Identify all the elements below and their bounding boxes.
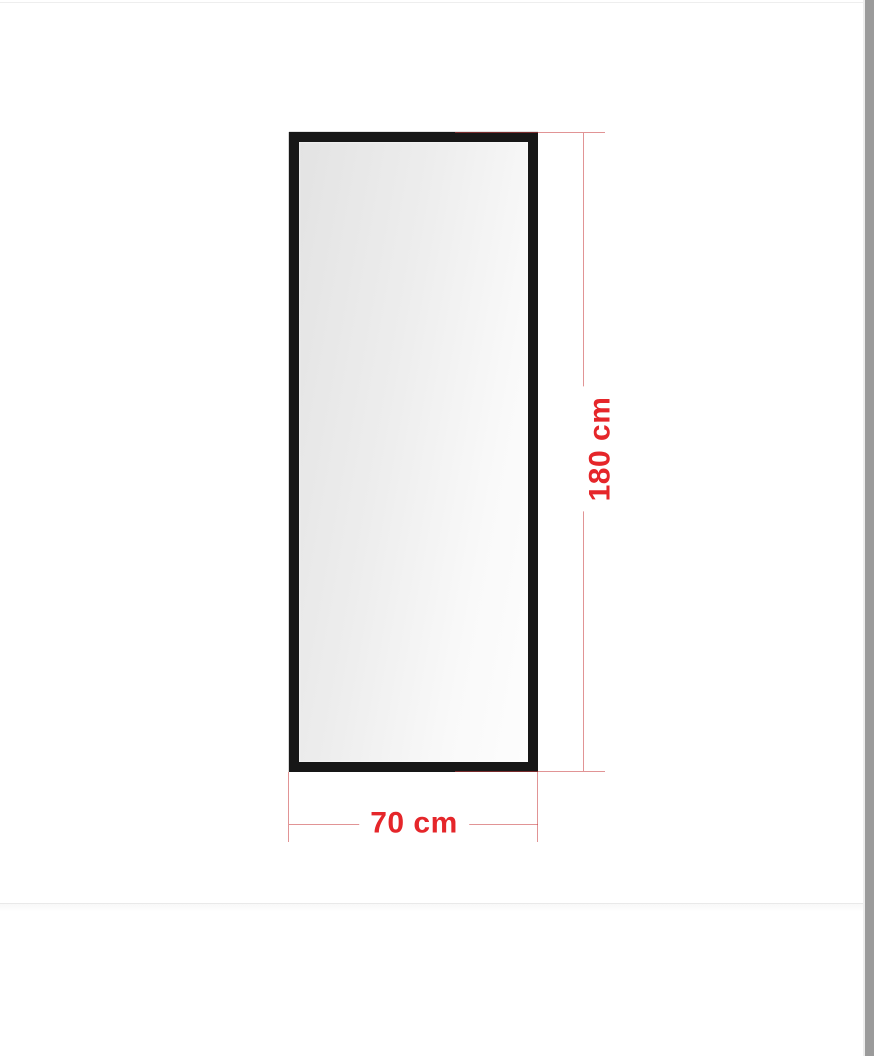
width-dimension-label: 70 cm — [359, 807, 469, 840]
mirror-frame — [289, 132, 538, 772]
height-extension-line-bottom — [455, 771, 605, 772]
width-extension-line-left — [288, 772, 289, 842]
scrollbar[interactable] — [863, 0, 874, 1056]
height-dimension-label: 180 cm — [582, 387, 619, 512]
product-dimension-page: 180 cm 70 cm — [0, 0, 874, 1056]
page-top-divider — [0, 2, 866, 3]
width-extension-line-right — [537, 772, 538, 842]
content-divider-shade — [0, 904, 864, 912]
mirror-glass — [299, 142, 528, 762]
